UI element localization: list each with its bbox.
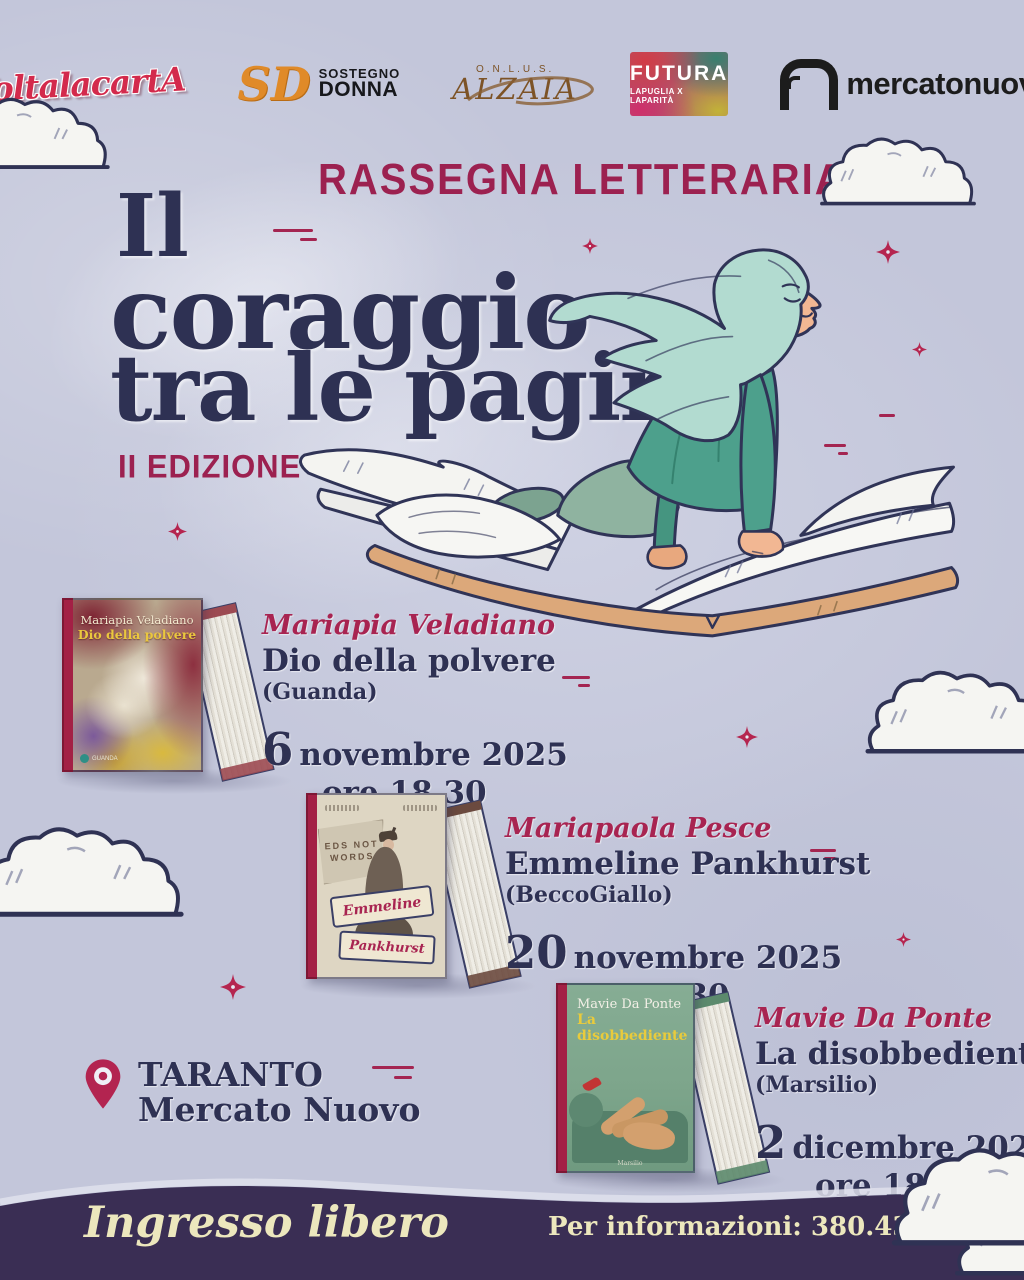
woman-far-hand xyxy=(648,545,687,568)
cover-red-shoe xyxy=(582,1076,602,1093)
kicker-rassegna-letteraria: RASSEGNA LETTERARIA xyxy=(318,156,846,205)
cover-banner-emmeline: Emmeline xyxy=(329,885,434,928)
map-pin-icon xyxy=(84,1058,122,1110)
cover-cushion xyxy=(569,1093,603,1127)
event-date: 20novembre 2025 xyxy=(505,930,975,976)
book-cover-emmeline-pankhurst: EDS NOT WORDS Emmeline Pankhurst xyxy=(306,793,506,989)
cover-title: Dio della polvere xyxy=(73,627,201,642)
event-book-title: La disobbediente xyxy=(755,1039,1024,1071)
event-author: Mavie Da Ponte xyxy=(755,1003,1024,1034)
mercatonuovo-logo: mercatonuovo xyxy=(780,59,1024,110)
publisher-dot xyxy=(80,754,89,763)
book-spine xyxy=(306,793,317,979)
cover-banner-pankhurst: Pankhurst xyxy=(338,931,435,965)
publisher-imprint: Marsilio xyxy=(567,1160,693,1167)
flying-book-illustration xyxy=(258,216,982,668)
sparkle-star xyxy=(220,974,246,1000)
cover-author: Mariapia Veladiano xyxy=(73,613,201,627)
location-block: TARANTO Mercato Nuovo xyxy=(84,1058,420,1128)
partner-logo-bar: VoltalacartA SD SOSTEGNO DONNA O.N.L.U.S… xyxy=(0,48,1024,120)
book-spine xyxy=(62,598,73,772)
woman-figure xyxy=(377,250,820,568)
sostegno-donna-line2: DONNA xyxy=(319,80,401,100)
cloud-top-left xyxy=(0,92,114,178)
book-cover-dio-della-polvere: Mariapia Veladiano Dio della polvere GUA… xyxy=(62,598,262,784)
sostegno-donna-logo: SD SOSTEGNO DONNA xyxy=(237,61,400,107)
cover-script-decoration xyxy=(325,805,359,811)
event-book-title: Emmeline Pankhurst xyxy=(505,849,975,881)
event-publisher: (BeccoGiallo) xyxy=(505,882,975,908)
alzaia-name: ALZAIA xyxy=(452,75,578,104)
mercatonuovo-name: mercatonuovo xyxy=(846,66,1024,102)
futura-logo: FUTURA LAPUGLIA X LAPARITÀ xyxy=(630,52,728,116)
book-front-cover: Mavie Da Ponte La disobbediente Marsilio xyxy=(567,983,695,1173)
cover-title: La disobbediente xyxy=(577,1012,693,1044)
event-book-title: Dio della polvere xyxy=(262,646,732,678)
event-1: Mariapia Veladiano Dio della polvere (Gu… xyxy=(262,610,732,811)
event-publisher: (Marsilio) xyxy=(755,1072,1024,1098)
book-front-cover: Mariapia Veladiano Dio della polvere GUA… xyxy=(73,598,203,772)
event-date: 6novembre 2025 xyxy=(262,727,732,773)
event-author: Mariapia Veladiano xyxy=(262,610,732,641)
publisher-imprint: GUANDA xyxy=(80,754,118,763)
event-publisher: (Guanda) xyxy=(262,679,732,705)
mercatonuovo-arch-icon xyxy=(780,59,838,110)
book-spine xyxy=(556,983,567,1173)
book-front-cover: EDS NOT WORDS Emmeline Pankhurst xyxy=(317,793,447,979)
cloud-top-right xyxy=(814,132,982,214)
cover-author: Mavie Da Ponte xyxy=(577,997,693,1012)
alzaia-logo: O.N.L.U.S. ALZAIA xyxy=(452,64,578,104)
location-city: TARANTO xyxy=(138,1058,420,1093)
cloud-bottom-right xyxy=(886,1140,1024,1258)
futura-name: FUTURA xyxy=(630,63,728,84)
admission-label: Ingresso libero xyxy=(84,1198,449,1248)
futura-subtitle: LAPUGLIA X LAPARITÀ xyxy=(630,87,728,105)
sparkle-star xyxy=(168,522,187,541)
location-venue: Mercato Nuovo xyxy=(138,1093,420,1128)
event-author: Mariapaola Pesce xyxy=(505,813,975,844)
event-poster: VoltalacartA SD SOSTEGNO DONNA O.N.L.U.S… xyxy=(0,0,1024,1280)
cloud-left xyxy=(0,820,190,928)
sostegno-donna-monogram: SD xyxy=(237,61,310,107)
cloud-right xyxy=(858,664,1024,764)
cover-script-decoration xyxy=(403,805,437,811)
book-cover-la-disobbediente: Mavie Da Ponte La disobbediente Marsilio xyxy=(556,983,756,1183)
sparkle-star xyxy=(736,726,758,748)
